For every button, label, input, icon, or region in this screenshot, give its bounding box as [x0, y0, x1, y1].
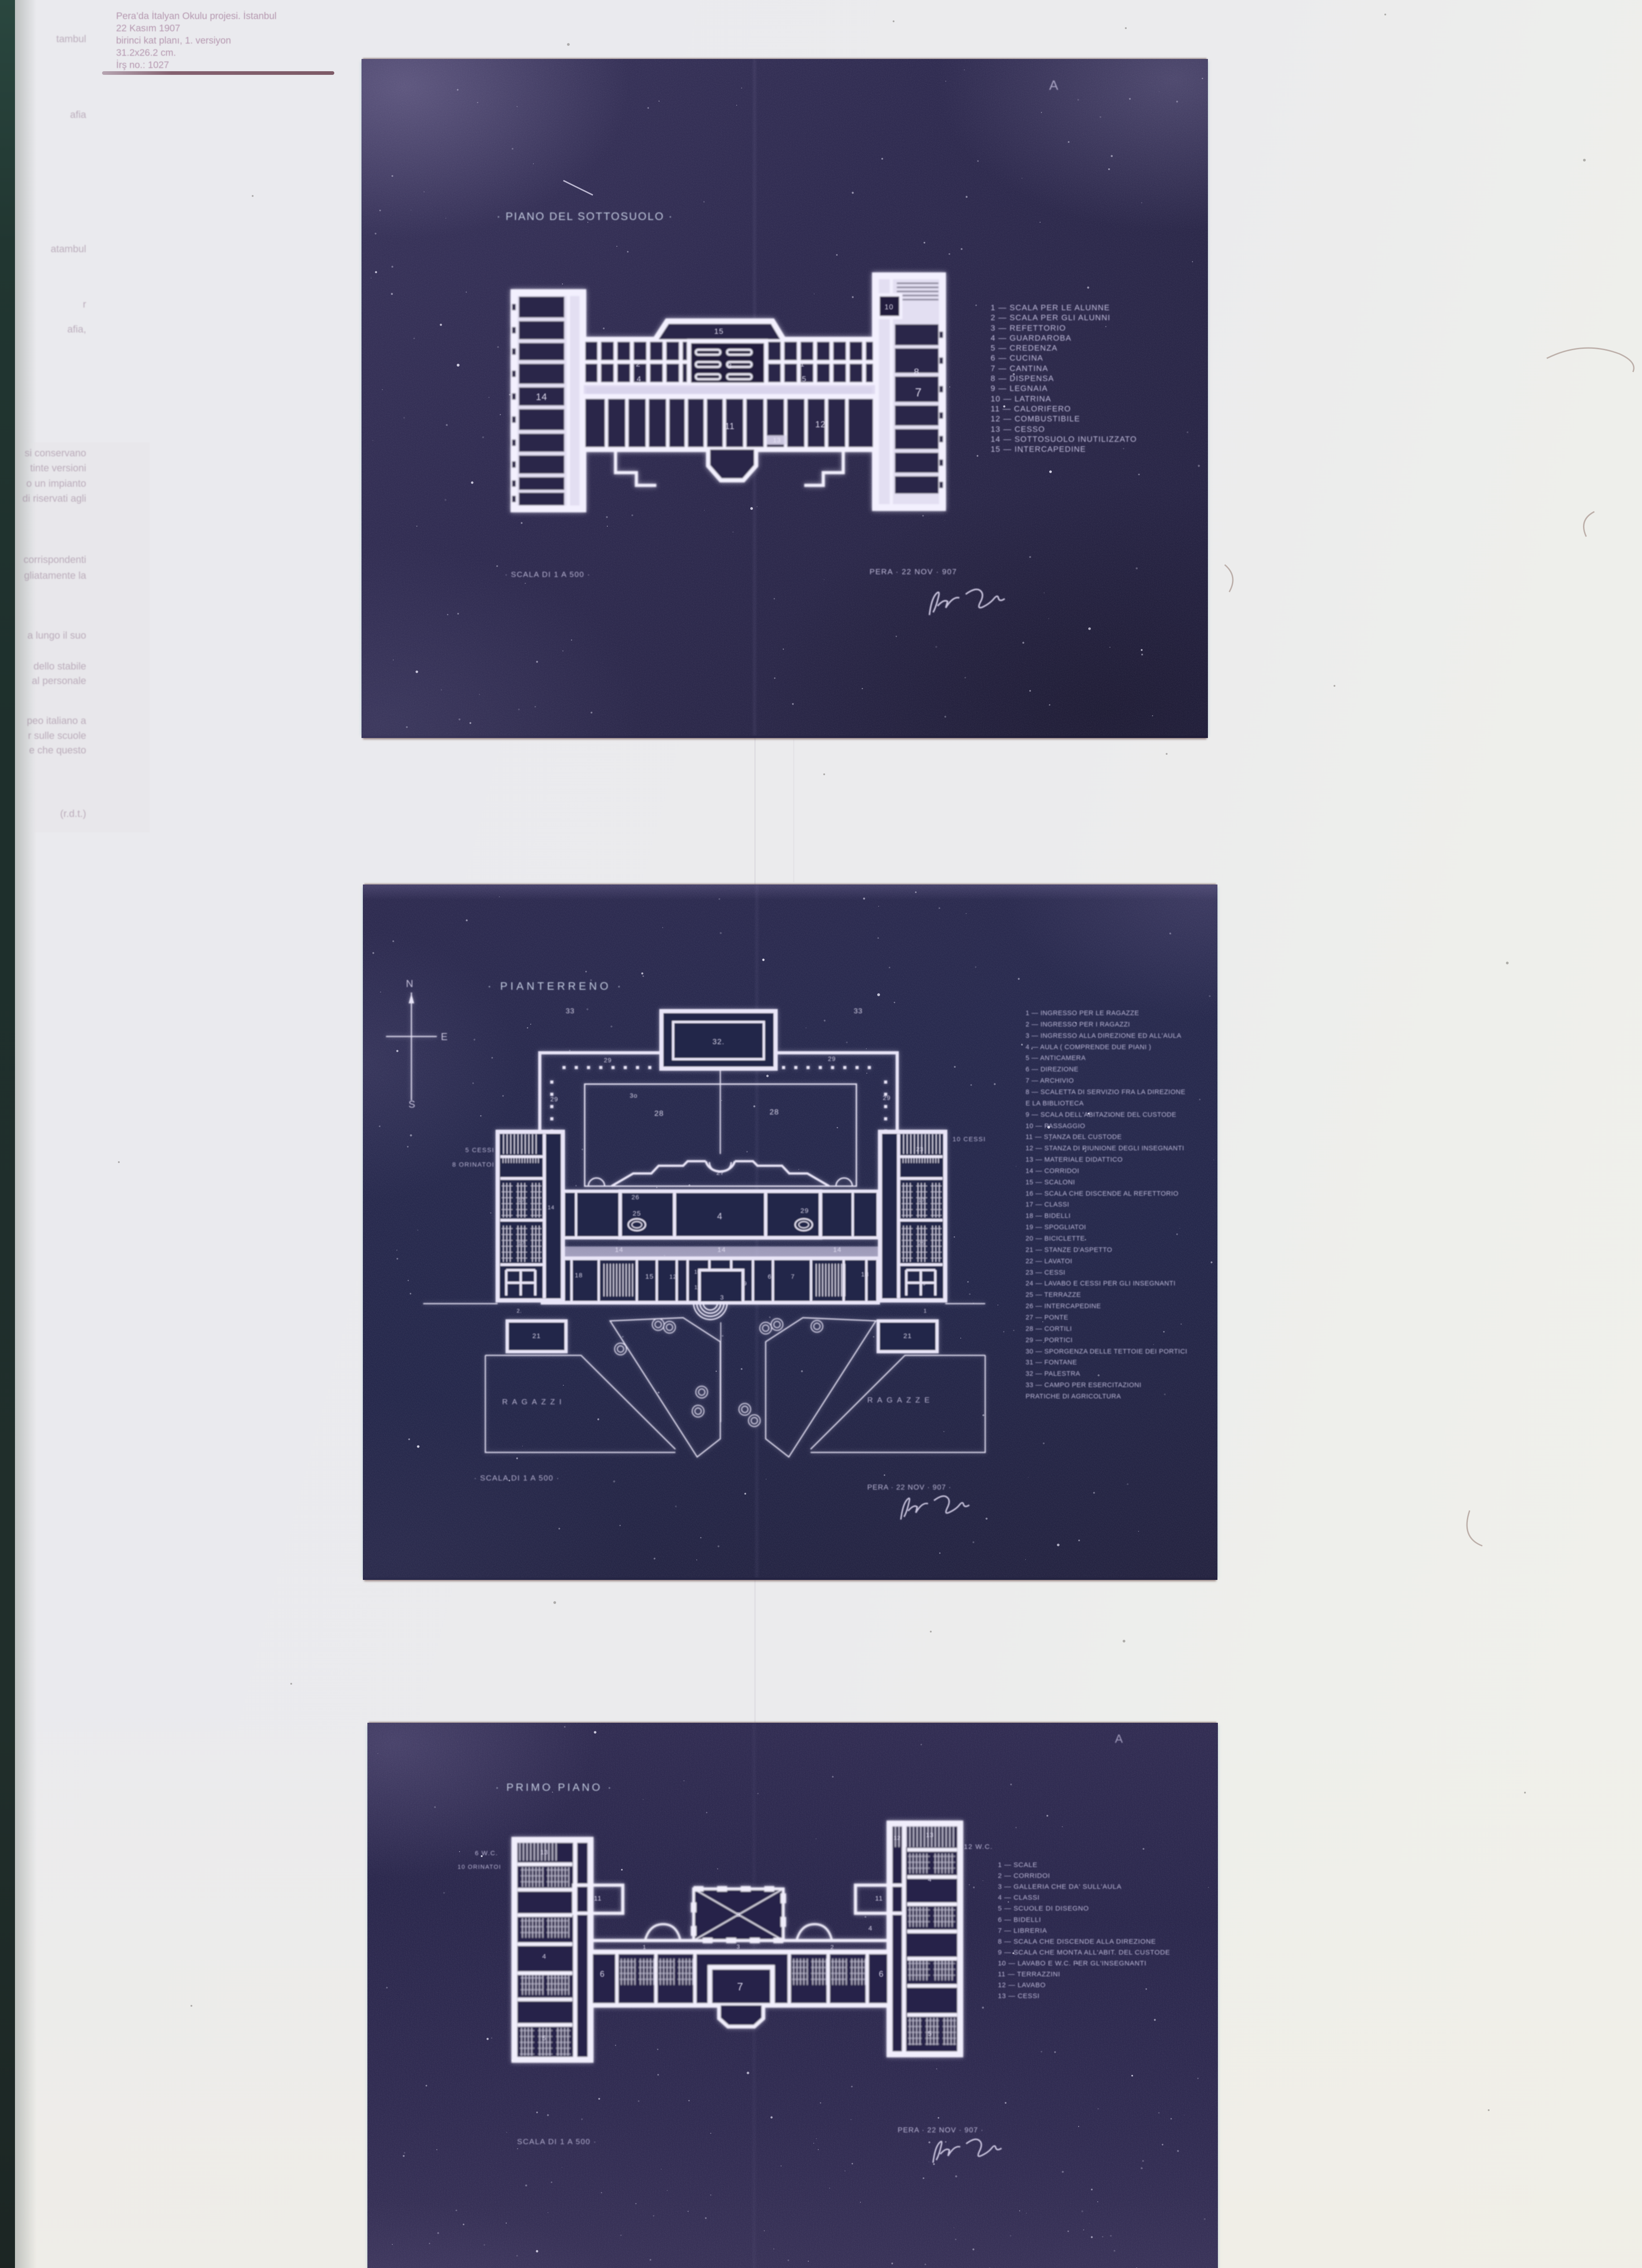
svg-text:4: 4 [542, 1953, 546, 1960]
svg-text:19 — SPOGLIATOI: 19 — SPOGLIATOI [1026, 1224, 1086, 1231]
svg-text:6: 6 [600, 1970, 605, 1979]
svg-text:8 — SCALETTA DI SERVIZIO FRA: 8 — SCALETTA DI SERVIZIO FRA LA DIREZION… [1026, 1089, 1185, 1096]
svg-text:1 — SCALE: 1 — SCALE [998, 1861, 1037, 1869]
svg-text:RAGAZZI: RAGAZZI [502, 1398, 566, 1406]
svg-text:SCALA DI 1 A 500 ·: SCALA DI 1 A 500 · [517, 2137, 596, 2146]
svg-text:7 — CANTINA: 7 — CANTINA [991, 364, 1048, 373]
svg-text:N: N [406, 978, 413, 989]
svg-text:18 — BIDELLI: 18 — BIDELLI [1026, 1212, 1070, 1220]
svg-text:7: 7 [915, 386, 922, 399]
svg-text:2 — CORRIDOI: 2 — CORRIDOI [998, 1872, 1050, 1880]
svg-text:17 — CLASSI: 17 — CLASSI [1026, 1201, 1069, 1208]
svg-text:15: 15 [714, 327, 724, 336]
svg-text:24 — LAVABO E CESSI PER GLI I: 24 — LAVABO E CESSI PER GLI INSEGNANTI [1026, 1280, 1176, 1287]
svg-text:3 — INGRESSO ALLA DIREZIONE E: 3 — INGRESSO ALLA DIREZIONE ED ALL'AULA [1026, 1032, 1181, 1040]
svg-text:· PIANO DEL SOTTOSUOLO ·: · PIANO DEL SOTTOSUOLO · [497, 210, 673, 223]
svg-text:18: 18 [575, 1271, 583, 1279]
svg-text:PERA · 22 NOV · 907 ·: PERA · 22 NOV · 907 · [867, 1484, 952, 1491]
svg-text:17: 17 [518, 1197, 525, 1203]
svg-text:5: 5 [928, 2030, 932, 2038]
svg-text:25 — TERRAZZE: 25 — TERRAZZE [1026, 1291, 1081, 1299]
svg-text:5 CESSI: 5 CESSI [465, 1146, 494, 1154]
svg-text:3: 3 [720, 1294, 724, 1301]
svg-text:3 — GALLERIA CHE DA' SULL'AUL: 3 — GALLERIA CHE DA' SULL'AULA [998, 1883, 1122, 1891]
svg-text:11: 11 [594, 1895, 602, 1902]
svg-text:10: 10 [694, 1269, 701, 1275]
svg-text:E: E [441, 1031, 448, 1042]
svg-text:11 — TERRAZZINI: 11 — TERRAZZINI [998, 1970, 1060, 1978]
svg-text:13: 13 [540, 1848, 548, 1856]
svg-text:PRATICHE DI AGRICOLTURA: PRATICHE DI AGRICOLTURA [1026, 1393, 1121, 1400]
svg-text:18: 18 [861, 1271, 869, 1278]
svg-text:6 — CUCINA: 6 — CUCINA [991, 353, 1043, 362]
svg-text:11: 11 [725, 422, 735, 431]
svg-text:1: 1 [643, 1944, 646, 1950]
svg-text:28: 28 [770, 1108, 779, 1116]
svg-text:32 — PALESTRA: 32 — PALESTRA [1026, 1370, 1080, 1378]
svg-text:14 — SOTTOSUOLO INUTILIZZATO: 14 — SOTTOSUOLO INUTILIZZATO [991, 435, 1137, 444]
svg-text:· PIANTERRENO ·: · PIANTERRENO · [488, 980, 624, 992]
svg-text:16 — SCALA CHE DISCENDE AL RE: 16 — SCALA CHE DISCENDE AL REFETTORIO [1026, 1190, 1178, 1198]
svg-text:13: 13 [926, 1831, 934, 1838]
svg-text:15: 15 [645, 1273, 654, 1281]
svg-text:10 CESSI: 10 CESSI [953, 1135, 986, 1143]
svg-text:29: 29 [883, 1094, 891, 1101]
svg-text:5 — CREDENZA: 5 — CREDENZA [991, 343, 1058, 352]
svg-text:33 — CAMPO PER ESERCITAZIONI: 33 — CAMPO PER ESERCITAZIONI [1026, 1382, 1141, 1389]
svg-text:11: 11 [694, 1284, 701, 1290]
svg-text:29 — PORTICI: 29 — PORTICI [1026, 1337, 1073, 1344]
svg-text:5 — ANTICAMERA: 5 — ANTICAMERA [1026, 1055, 1086, 1062]
svg-text:2: 2 [636, 360, 640, 368]
svg-text:23: 23 [916, 1146, 924, 1153]
svg-text:10 — LATRINA: 10 — LATRINA [991, 394, 1051, 403]
svg-text:14: 14 [547, 1204, 554, 1211]
svg-text:· SCALA DI 1 A 500 ·: · SCALA DI 1 A 500 · [505, 570, 591, 579]
svg-text:10: 10 [885, 303, 894, 311]
svg-text:1: 1 [800, 360, 805, 368]
svg-text:5: 5 [542, 2034, 546, 2042]
svg-text:4: 4 [637, 375, 641, 383]
svg-text:9 — SCALA DELL'ABITAZIONE DEL: 9 — SCALA DELL'ABITAZIONE DEL CUSTODE [1026, 1111, 1176, 1119]
svg-text:A: A [1049, 78, 1058, 93]
svg-text:28 — CORTILI: 28 — CORTILI [1026, 1325, 1072, 1333]
svg-text:2.: 2. [517, 1308, 522, 1314]
svg-text:26 — INTERCAPEDINE: 26 — INTERCAPEDINE [1026, 1303, 1101, 1310]
svg-text:12: 12 [894, 1835, 900, 1841]
svg-text:8: 8 [914, 367, 920, 377]
svg-text:21: 21 [533, 1332, 541, 1340]
svg-text:13: 13 [773, 436, 781, 444]
svg-text:13 — CESSI: 13 — CESSI [998, 1992, 1040, 2000]
svg-text:1: 1 [924, 1308, 927, 1314]
svg-text:8 — SCALA CHE DISCENDE ALLA DI: 8 — SCALA CHE DISCENDE ALLA DIREZIONE [998, 1938, 1156, 1945]
svg-text:10 — LAVABO E W.C. PER GL'IN: 10 — LAVABO E W.C. PER GL'INSEGNANTI [998, 1960, 1147, 1967]
svg-text:12 W.C.: 12 W.C. [964, 1843, 993, 1851]
svg-text:30 — SPORGENZA DELLE TETTOIE: 30 — SPORGENZA DELLE TETTOIE DEI PORTICI [1026, 1348, 1188, 1355]
svg-text:14: 14 [536, 392, 547, 402]
svg-text:25: 25 [918, 1240, 925, 1246]
svg-text:6 W.C.: 6 W.C. [475, 1849, 498, 1857]
svg-text:11: 11 [875, 1895, 883, 1902]
svg-text:3: 3 [736, 1911, 740, 1919]
svg-text:7 — ARCHIVIO: 7 — ARCHIVIO [1026, 1077, 1074, 1085]
svg-text:19: 19 [919, 1281, 926, 1287]
svg-text:4 — CLASSI: 4 — CLASSI [998, 1894, 1040, 1901]
svg-text:7: 7 [791, 1273, 795, 1280]
svg-text:13 — CESSO: 13 — CESSO [991, 425, 1045, 434]
svg-text:4 — AULA ( COMPRENDE DUE PIA: 4 — AULA ( COMPRENDE DUE PIANI ) [1026, 1044, 1151, 1051]
svg-text:33: 33 [854, 1007, 863, 1015]
svg-text:4: 4 [717, 1212, 723, 1222]
svg-text:25: 25 [633, 1210, 641, 1217]
svg-text:21 — STANZE D'ASPETTO: 21 — STANZE D'ASPETTO [1026, 1246, 1112, 1254]
svg-text:14: 14 [833, 1246, 842, 1254]
svg-text:4: 4 [868, 1925, 872, 1932]
svg-text:11 — CALORIFERO: 11 — CALORIFERO [991, 404, 1071, 413]
svg-text:27 — PONTE: 27 — PONTE [1026, 1314, 1068, 1321]
svg-text:29: 29 [801, 1207, 809, 1215]
svg-text:· SCALA DI 1 A 500 ·: · SCALA DI 1 A 500 · [474, 1474, 560, 1482]
svg-text:E LA BIBLIOTECA: E LA BIBLIOTECA [1026, 1100, 1084, 1107]
svg-text:PERA · 22 NOV · 907: PERA · 22 NOV · 907 [870, 567, 957, 576]
svg-text:9 — LEGNAIA: 9 — LEGNAIA [991, 384, 1048, 393]
svg-text:26: 26 [631, 1193, 640, 1201]
svg-text:31 — FONTANE: 31 — FONTANE [1026, 1359, 1077, 1366]
svg-text:2: 2 [831, 1944, 834, 1950]
svg-text:12: 12 [815, 420, 826, 430]
svg-text:27: 27 [716, 1169, 724, 1176]
svg-text:6: 6 [768, 1273, 772, 1280]
svg-text:S: S [409, 1099, 415, 1110]
svg-text:6: 6 [879, 1970, 884, 1979]
svg-text:10 ORINATOI: 10 ORINATOI [458, 1863, 501, 1870]
svg-text:RAGAZZE: RAGAZZE [867, 1396, 934, 1404]
svg-text:15 — SCALONI: 15 — SCALONI [1026, 1179, 1075, 1186]
svg-text:12: 12 [670, 1273, 677, 1280]
svg-text:2 — INGRESSO PER I RAGAZZI: 2 — INGRESSO PER I RAGAZZI [1026, 1021, 1130, 1028]
svg-text:4: 4 [928, 1876, 932, 1883]
svg-text:5 — SCUOLE DI DISEGNO: 5 — SCUOLE DI DISEGNO [998, 1905, 1089, 1912]
svg-text:32.: 32. [713, 1037, 725, 1046]
svg-text:17: 17 [918, 1197, 925, 1203]
svg-text:4 — GUARDAROBA: 4 — GUARDAROBA [991, 333, 1071, 342]
svg-text:8 — DISPENSA: 8 — DISPENSA [991, 374, 1054, 383]
svg-text:9 — SCALA CHE MONTA ALL'ABIT.: 9 — SCALA CHE MONTA ALL'ABIT. DEL CUSTOD… [998, 1949, 1170, 1956]
svg-text:9: 9 [743, 1280, 747, 1287]
svg-text:6 — DIREZIONE: 6 — DIREZIONE [1026, 1066, 1079, 1073]
svg-text:3 — REFETTORIO: 3 — REFETTORIO [991, 323, 1066, 332]
svg-text:23 — CESSI: 23 — CESSI [1026, 1269, 1065, 1276]
svg-text:12 — STANZA DI RIUNIONE DEGL: 12 — STANZA DI RIUNIONE DEGLI INSEGNANTI [1026, 1145, 1184, 1152]
svg-text:8 ORINATOI: 8 ORINATOI [452, 1161, 494, 1168]
svg-text:PERA · 22 NOV · 907 ·: PERA · 22 NOV · 907 · [898, 2126, 984, 2134]
svg-text:29: 29 [550, 1095, 558, 1103]
svg-text:3o: 3o [630, 1092, 638, 1099]
svg-text:21: 21 [904, 1332, 912, 1340]
svg-text:11 — STANZA DEL CUSTODE: 11 — STANZA DEL CUSTODE [1026, 1134, 1122, 1141]
svg-text:7: 7 [737, 1981, 743, 1993]
svg-text:· PRIMO PIANO ·: · PRIMO PIANO · [495, 1781, 613, 1793]
svg-text:15 — INTERCAPEDINE: 15 — INTERCAPEDINE [991, 445, 1086, 454]
svg-text:29: 29 [828, 1055, 836, 1062]
svg-text:6 — BIDELLI: 6 — BIDELLI [998, 1916, 1041, 1924]
svg-text:29: 29 [604, 1056, 612, 1064]
svg-text:3: 3 [728, 362, 732, 370]
svg-text:1 — INGRESSO PER LE RAGAZZE: 1 — INGRESSO PER LE RAGAZZE [1026, 1010, 1139, 1017]
svg-text:12 — COMBUSTIBILE: 12 — COMBUSTIBILE [991, 414, 1080, 423]
svg-text:1 — SCALA PER LE ALUNNE: 1 — SCALA PER LE ALUNNE [991, 303, 1110, 312]
svg-text:14: 14 [718, 1246, 726, 1254]
svg-text:A: A [1115, 1732, 1123, 1745]
svg-text:13 — MATERIALE DIDATTICO: 13 — MATERIALE DIDATTICO [1026, 1156, 1123, 1163]
svg-text:12 — LAVABO: 12 — LAVABO [998, 1981, 1046, 1989]
svg-text:17: 17 [518, 1240, 525, 1246]
svg-text:10 — PASSAGGIO: 10 — PASSAGGIO [1026, 1123, 1085, 1130]
svg-text:7 — LIBRERIA: 7 — LIBRERIA [998, 1927, 1047, 1935]
svg-text:28: 28 [655, 1109, 664, 1118]
svg-text:22 — LAVATOI: 22 — LAVATOI [1026, 1258, 1072, 1265]
svg-text:3: 3 [737, 1943, 740, 1950]
svg-text:2 — SCALA PER GLI ALUNNI: 2 — SCALA PER GLI ALUNNI [991, 313, 1110, 322]
svg-text:14: 14 [615, 1246, 624, 1254]
svg-text:14 — CORRIDOI: 14 — CORRIDOI [1026, 1168, 1079, 1175]
svg-text:33: 33 [566, 1007, 575, 1015]
svg-text:5: 5 [802, 375, 806, 383]
svg-text:20 — BICICLETTE: 20 — BICICLETTE [1026, 1235, 1085, 1242]
